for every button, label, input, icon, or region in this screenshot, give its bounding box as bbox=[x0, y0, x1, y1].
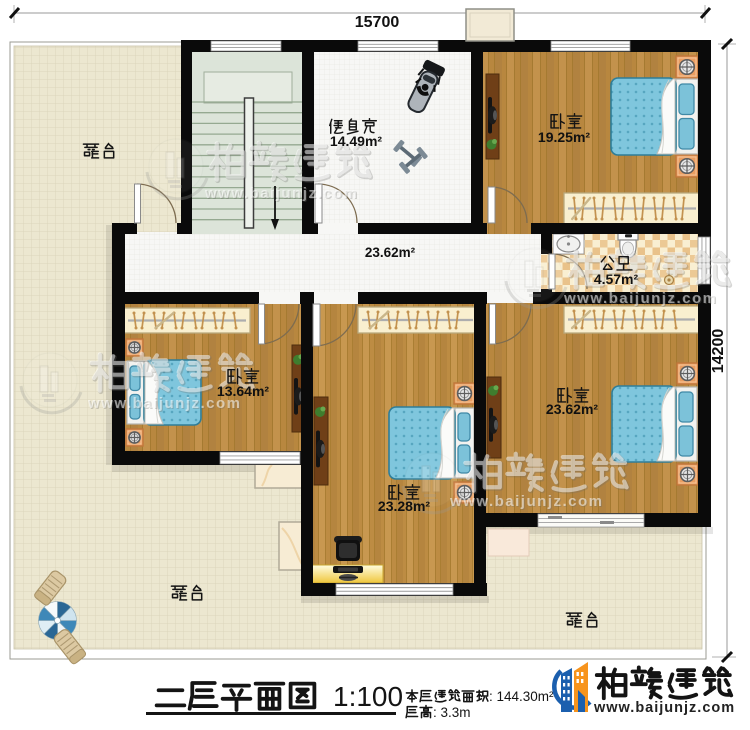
svg-text:14200: 14200 bbox=[710, 329, 727, 374]
svg-text:15700: 15700 bbox=[355, 14, 400, 31]
svg-text:23.62m²: 23.62m² bbox=[365, 245, 416, 260]
svg-text:23.28m²: 23.28m² bbox=[378, 498, 430, 514]
svg-text:www.baijunjz.com: www.baijunjz.com bbox=[563, 290, 717, 307]
svg-text:www.baijunjz.com: www.baijunjz.com bbox=[593, 700, 735, 716]
svg-text:19.25m²: 19.25m² bbox=[538, 129, 590, 145]
svg-text:: 144.30m²: : 144.30m² bbox=[489, 689, 554, 704]
svg-text:13.64m²: 13.64m² bbox=[217, 383, 269, 399]
svg-text:: 3.3m: : 3.3m bbox=[433, 705, 471, 720]
svg-text:14.49m²: 14.49m² bbox=[330, 133, 382, 149]
svg-text:1:100: 1:100 bbox=[333, 681, 403, 712]
svg-text:4.57m²: 4.57m² bbox=[594, 271, 639, 287]
svg-text:www.baijunjz.com: www.baijunjz.com bbox=[204, 185, 358, 202]
svg-text:23.62m²: 23.62m² bbox=[546, 401, 598, 417]
svg-text:www.baijunjz.com: www.baijunjz.com bbox=[449, 493, 603, 510]
